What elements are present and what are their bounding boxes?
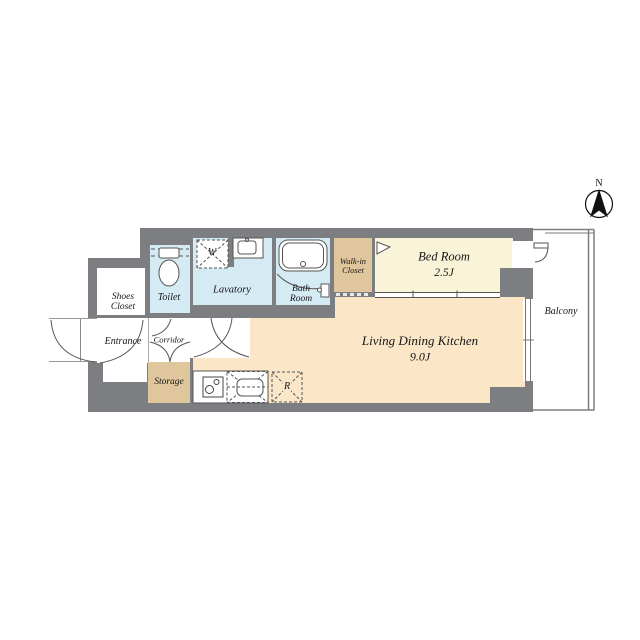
label-ldk: Living Dining Kitchen: [362, 334, 478, 348]
porch-alcove: [103, 363, 147, 382]
label-washing-machine: W: [208, 248, 216, 259]
sink-icon: [233, 238, 263, 258]
label-balcony: Balcony: [545, 307, 578, 318]
compass-north-icon: [586, 191, 613, 218]
label-refrigerator: R: [283, 382, 291, 393]
label-lavatory: Lavatory: [213, 284, 251, 295]
label-bath-room: Bath Room: [290, 285, 312, 305]
ldk-window: [523, 299, 534, 381]
label-walk-in-closet: Walk-in Closet: [340, 257, 366, 275]
plan-symbols: [0, 0, 640, 640]
balcony-door: [512, 241, 548, 268]
label-storage: Storage: [154, 378, 184, 388]
sliding-partition: [375, 291, 500, 298]
label-shoes-closet: Shoes Closet: [111, 293, 135, 313]
balcony-outline: [533, 230, 594, 411]
label-ldk-size: 9.0J: [410, 351, 430, 364]
label-corridor: Corridor: [154, 336, 185, 345]
ldk-doorway: [190, 318, 250, 358]
storage-door-arc-left: [150, 342, 170, 362]
label-bed-room-size: 2.5J: [434, 267, 453, 279]
floor-plan: Shoes Closet Toilet Lavatory Bath Room W…: [0, 0, 640, 640]
wic-door-icon: [377, 242, 390, 254]
label-toilet: Toilet: [158, 293, 180, 304]
storage-door-arc-right: [170, 342, 190, 362]
label-bed-room: Bed Room: [418, 250, 470, 263]
bathtub-icon: [279, 240, 327, 271]
stove-icon: [203, 377, 223, 397]
wall-pillar-ldk: [490, 387, 533, 412]
entrance-opening: [80, 318, 97, 362]
bath-faucet-icon: [318, 284, 330, 297]
label-entrance: Entrance: [105, 337, 142, 348]
label-north: N: [595, 179, 602, 190]
toilet-door-arc: [152, 319, 171, 336]
wall-pillar-bedroom: [500, 268, 533, 293]
toilet-icon: [151, 248, 189, 286]
